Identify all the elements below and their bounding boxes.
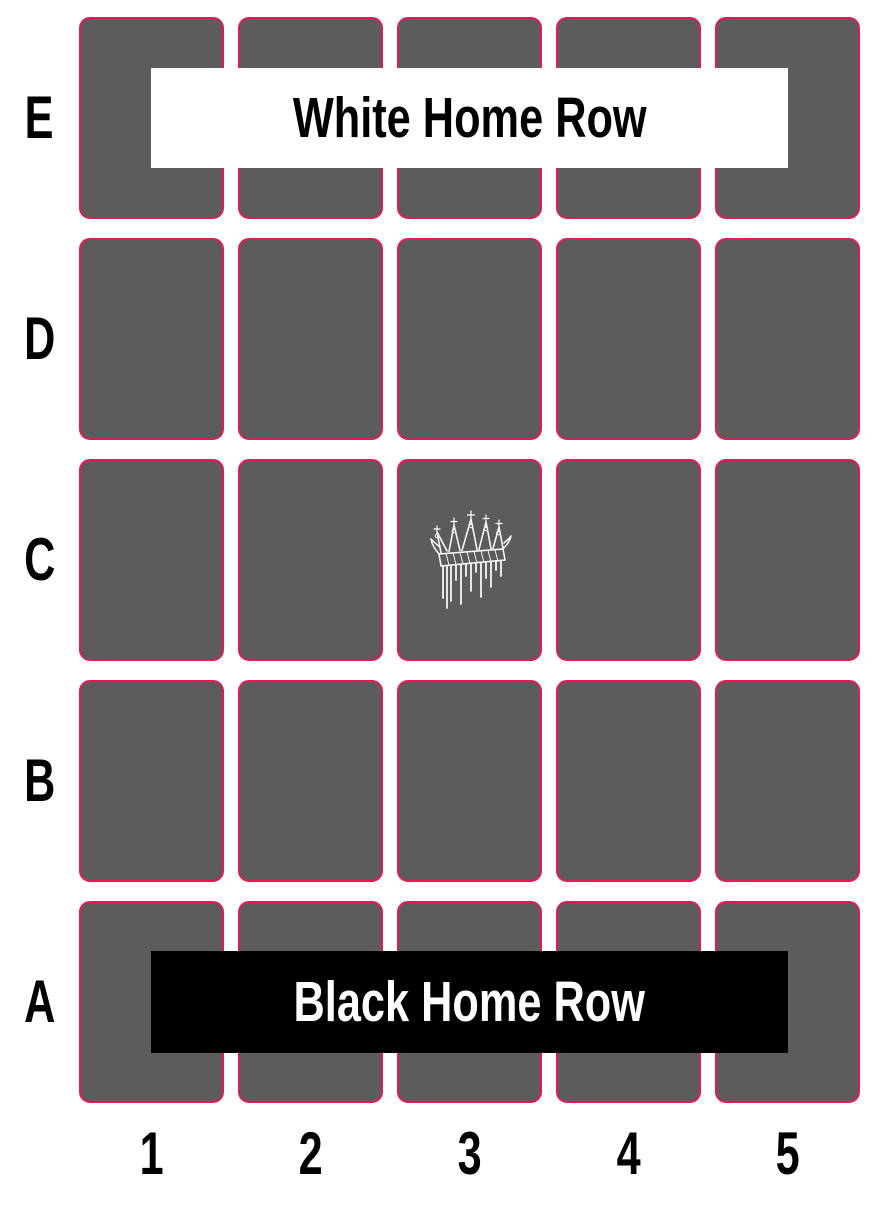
cell-C2[interactable] bbox=[238, 459, 383, 661]
cell-B5[interactable] bbox=[715, 680, 860, 882]
cell-B2[interactable] bbox=[238, 680, 383, 882]
game-board: EDCBA 12345 White Home Row Black Home Ro… bbox=[0, 0, 886, 1208]
cell-C5[interactable] bbox=[715, 459, 860, 661]
cell-D1[interactable] bbox=[79, 238, 224, 440]
crown-icon[interactable] bbox=[426, 505, 516, 610]
row-label-B: B bbox=[0, 680, 79, 882]
row-label-A: A bbox=[0, 901, 79, 1103]
cell-D4[interactable] bbox=[556, 238, 701, 440]
white-home-row-banner: White Home Row bbox=[151, 68, 788, 168]
column-label-5: 5 bbox=[715, 1114, 860, 1194]
black-home-row-banner: Black Home Row bbox=[151, 951, 788, 1053]
black-home-row-label: Black Home Row bbox=[294, 974, 645, 1031]
cell-D5[interactable] bbox=[715, 238, 860, 440]
cell-B3[interactable] bbox=[397, 680, 542, 882]
column-label-1: 1 bbox=[79, 1114, 224, 1194]
white-home-row-label: White Home Row bbox=[293, 90, 647, 147]
row-label-C: C bbox=[0, 459, 79, 661]
cell-C1[interactable] bbox=[79, 459, 224, 661]
column-label-4: 4 bbox=[556, 1114, 701, 1194]
cell-D3[interactable] bbox=[397, 238, 542, 440]
cell-D2[interactable] bbox=[238, 238, 383, 440]
column-label-2: 2 bbox=[238, 1114, 383, 1194]
cell-B4[interactable] bbox=[556, 680, 701, 882]
column-label-3: 3 bbox=[397, 1114, 542, 1194]
cell-B1[interactable] bbox=[79, 680, 224, 882]
cell-C4[interactable] bbox=[556, 459, 701, 661]
row-label-D: D bbox=[0, 238, 79, 440]
row-label-E: E bbox=[0, 17, 79, 219]
